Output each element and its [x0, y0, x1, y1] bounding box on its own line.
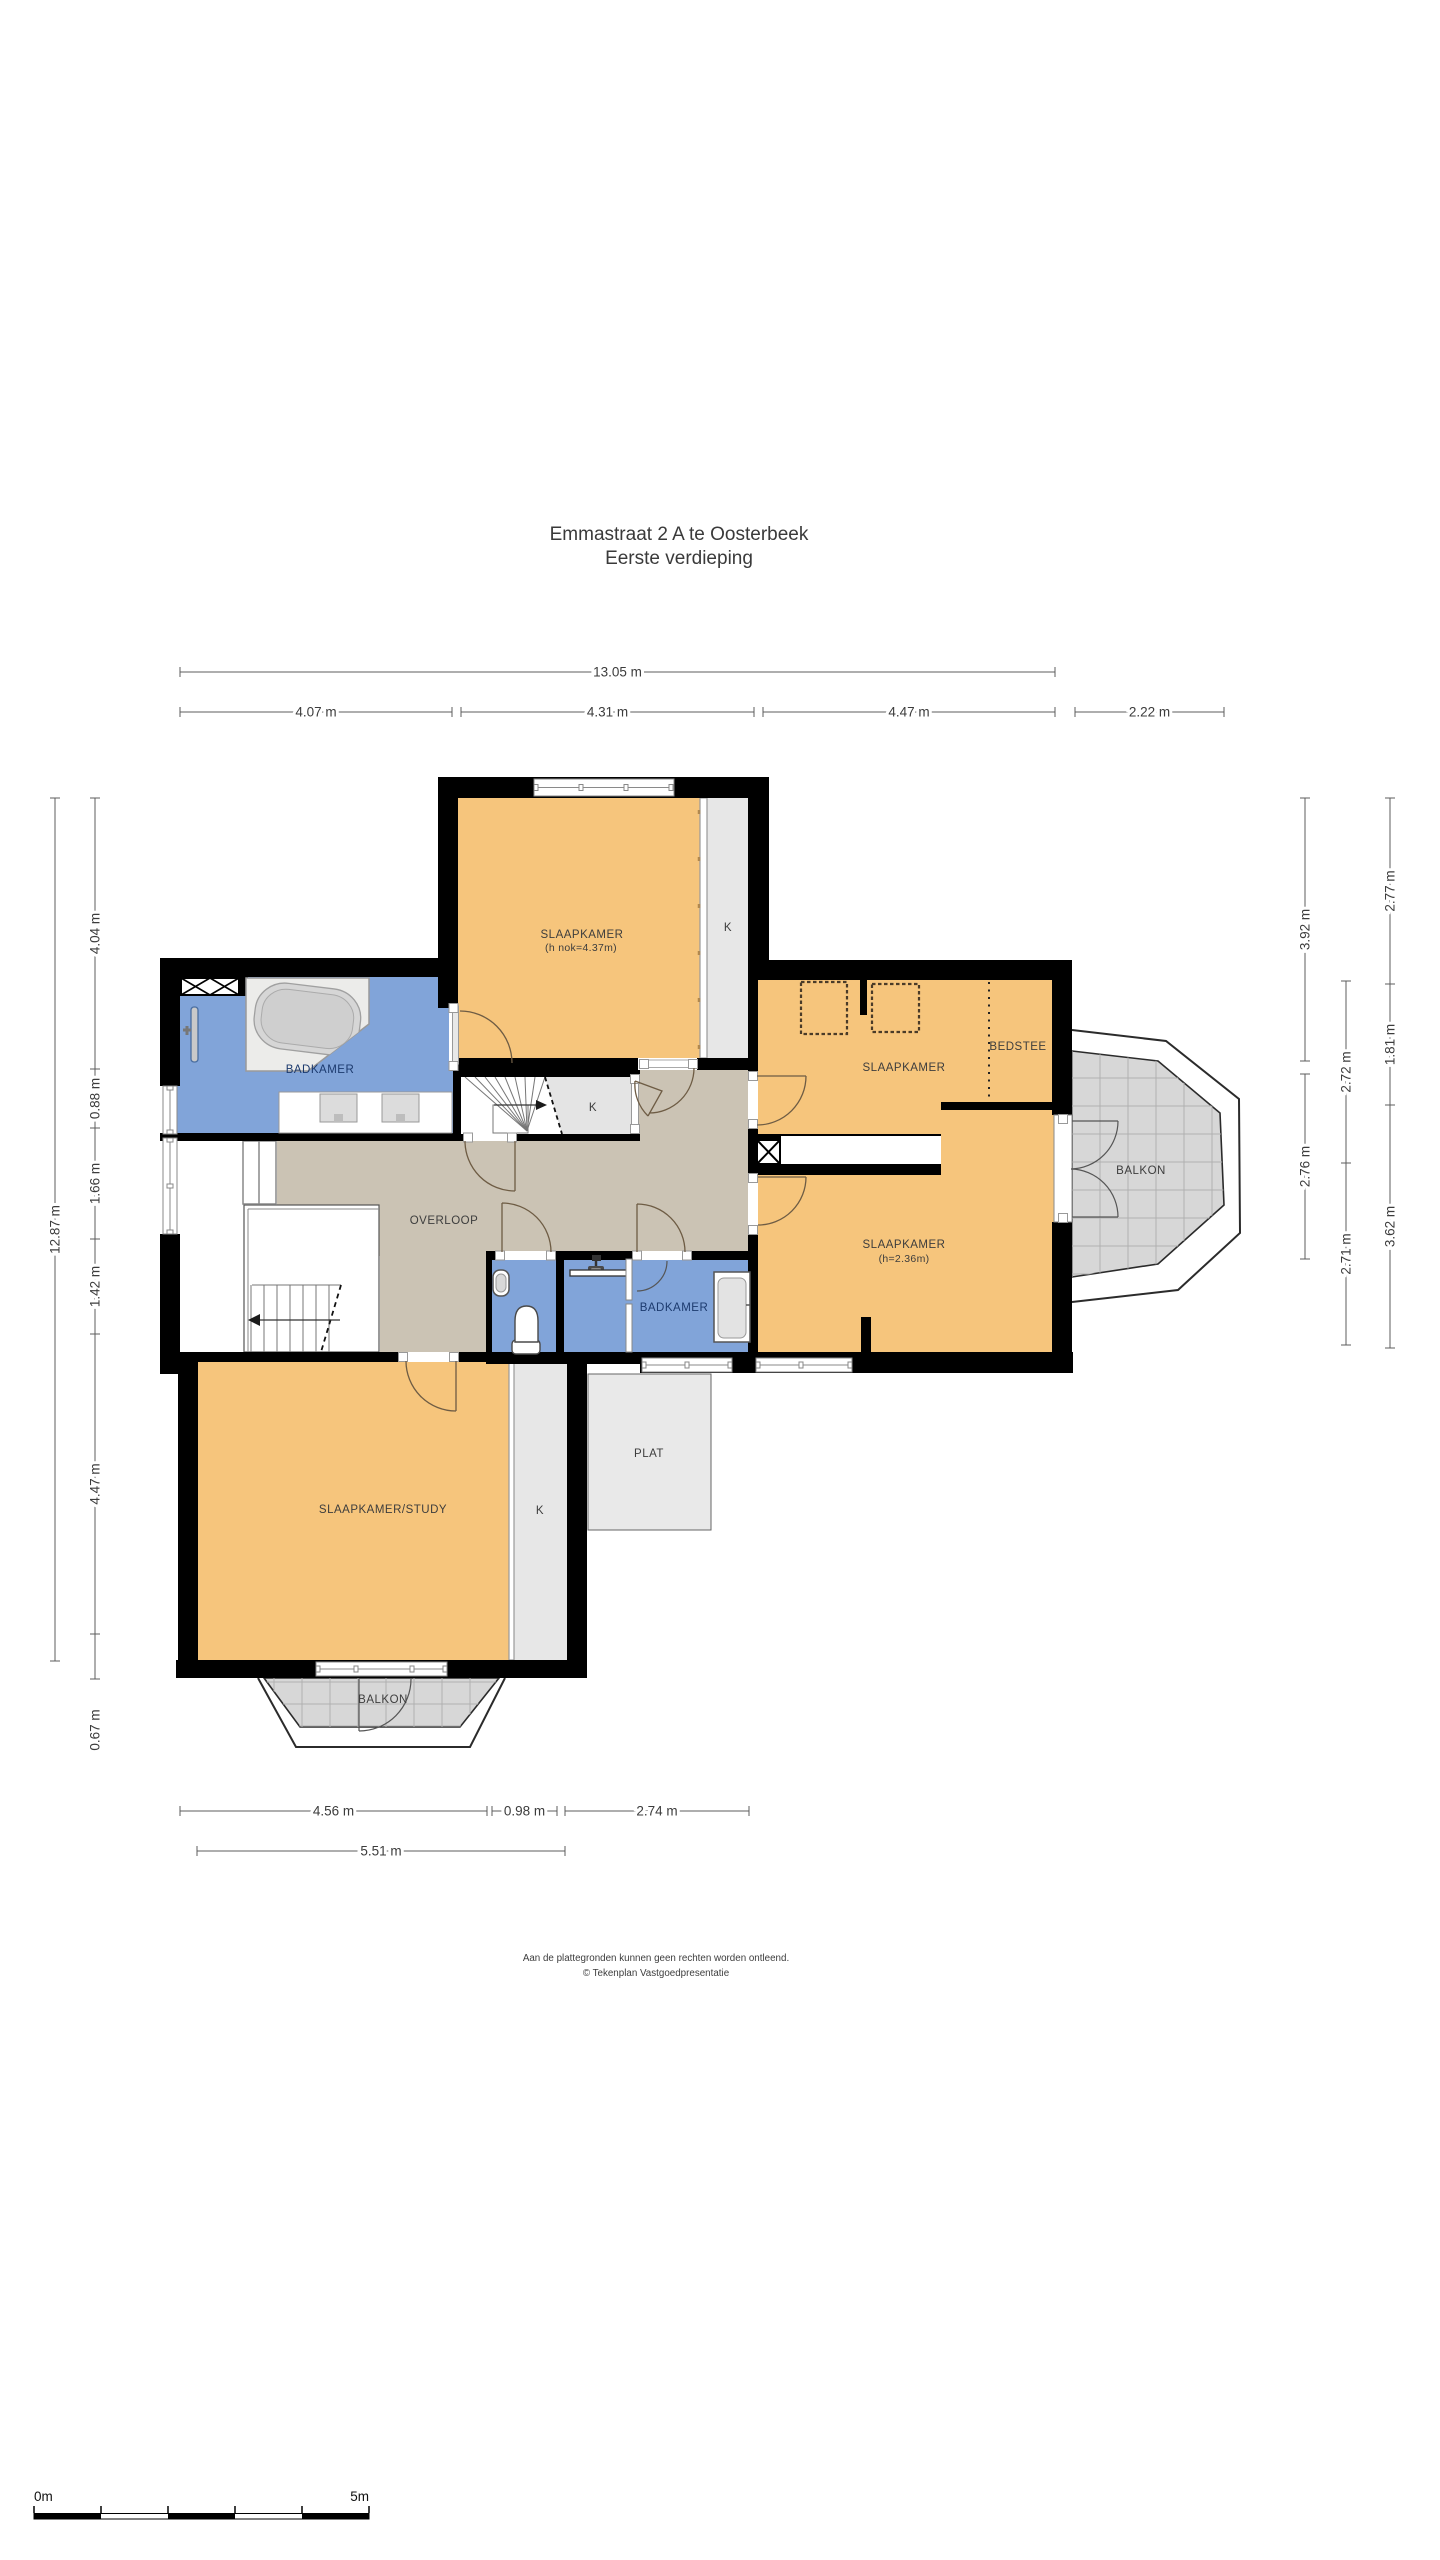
svg-text:4.56 m: 4.56 m: [313, 1804, 354, 1819]
svg-text:BALKON: BALKON: [1116, 1165, 1166, 1177]
svg-text:5m: 5m: [350, 2489, 369, 2504]
svg-text:4.47 m: 4.47 m: [88, 1463, 103, 1504]
svg-text:SLAAPKAMER: SLAAPKAMER: [541, 929, 624, 941]
svg-text:0.88 m: 0.88 m: [88, 1078, 103, 1119]
svg-text:2.71 m: 2.71 m: [1339, 1233, 1354, 1274]
svg-text:(h=2.36m): (h=2.36m): [879, 1253, 930, 1265]
svg-text:K: K: [536, 1505, 544, 1517]
svg-text:PLAT: PLAT: [634, 1448, 664, 1460]
svg-text:SLAAPKAMER/STUDY: SLAAPKAMER/STUDY: [319, 1504, 447, 1516]
svg-text:2.22 m: 2.22 m: [1129, 705, 1170, 720]
svg-text:OVERLOOP: OVERLOOP: [410, 1215, 479, 1227]
svg-text:BADKAMER: BADKAMER: [286, 1064, 355, 1076]
svg-text:4.04 m: 4.04 m: [88, 913, 103, 954]
svg-text:2.74 m: 2.74 m: [636, 1804, 677, 1819]
svg-text:Aan de plattegronden kunnen ge: Aan de plattegronden kunnen geen rechten…: [523, 1953, 789, 1964]
svg-text:K: K: [724, 922, 732, 934]
svg-text:4.07 m: 4.07 m: [295, 705, 336, 720]
svg-text:1.66 m: 1.66 m: [88, 1163, 103, 1204]
svg-text:4.47 m: 4.47 m: [888, 705, 929, 720]
svg-text:13.05 m: 13.05 m: [593, 665, 642, 680]
svg-text:SLAAPKAMER: SLAAPKAMER: [863, 1062, 946, 1074]
svg-text:BALKON: BALKON: [358, 1694, 408, 1706]
svg-text:0.98 m: 0.98 m: [504, 1804, 545, 1819]
svg-text:BEDSTEE: BEDSTEE: [989, 1041, 1046, 1053]
svg-text:Eerste verdieping: Eerste verdieping: [605, 548, 753, 569]
svg-text:12.87 m: 12.87 m: [48, 1205, 63, 1254]
svg-text:BADKAMER: BADKAMER: [640, 1302, 709, 1314]
svg-text:© Tekenplan Vastgoedpresentati: © Tekenplan Vastgoedpresentatie: [583, 1968, 730, 1979]
svg-text:2.72 m: 2.72 m: [1339, 1051, 1354, 1092]
svg-text:Emmastraat 2 A te Oosterbeek: Emmastraat 2 A te Oosterbeek: [550, 524, 809, 545]
svg-text:2.77 m: 2.77 m: [1383, 870, 1398, 911]
svg-text:3.92 m: 3.92 m: [1298, 909, 1313, 950]
svg-text:0m: 0m: [34, 2489, 53, 2504]
svg-text:4.31 m: 4.31 m: [587, 705, 628, 720]
svg-text:K: K: [589, 1102, 597, 1114]
svg-text:1.42 m: 1.42 m: [88, 1266, 103, 1307]
svg-text:SLAAPKAMER: SLAAPKAMER: [863, 1239, 946, 1251]
svg-text:3.62 m: 3.62 m: [1383, 1206, 1398, 1247]
svg-text:(h nok=4.37m): (h nok=4.37m): [545, 942, 617, 954]
svg-text:5.51 m: 5.51 m: [360, 1844, 401, 1859]
svg-text:2.76 m: 2.76 m: [1298, 1146, 1313, 1187]
svg-text:0.67 m: 0.67 m: [88, 1709, 103, 1750]
svg-text:1.81 m: 1.81 m: [1383, 1024, 1398, 1065]
